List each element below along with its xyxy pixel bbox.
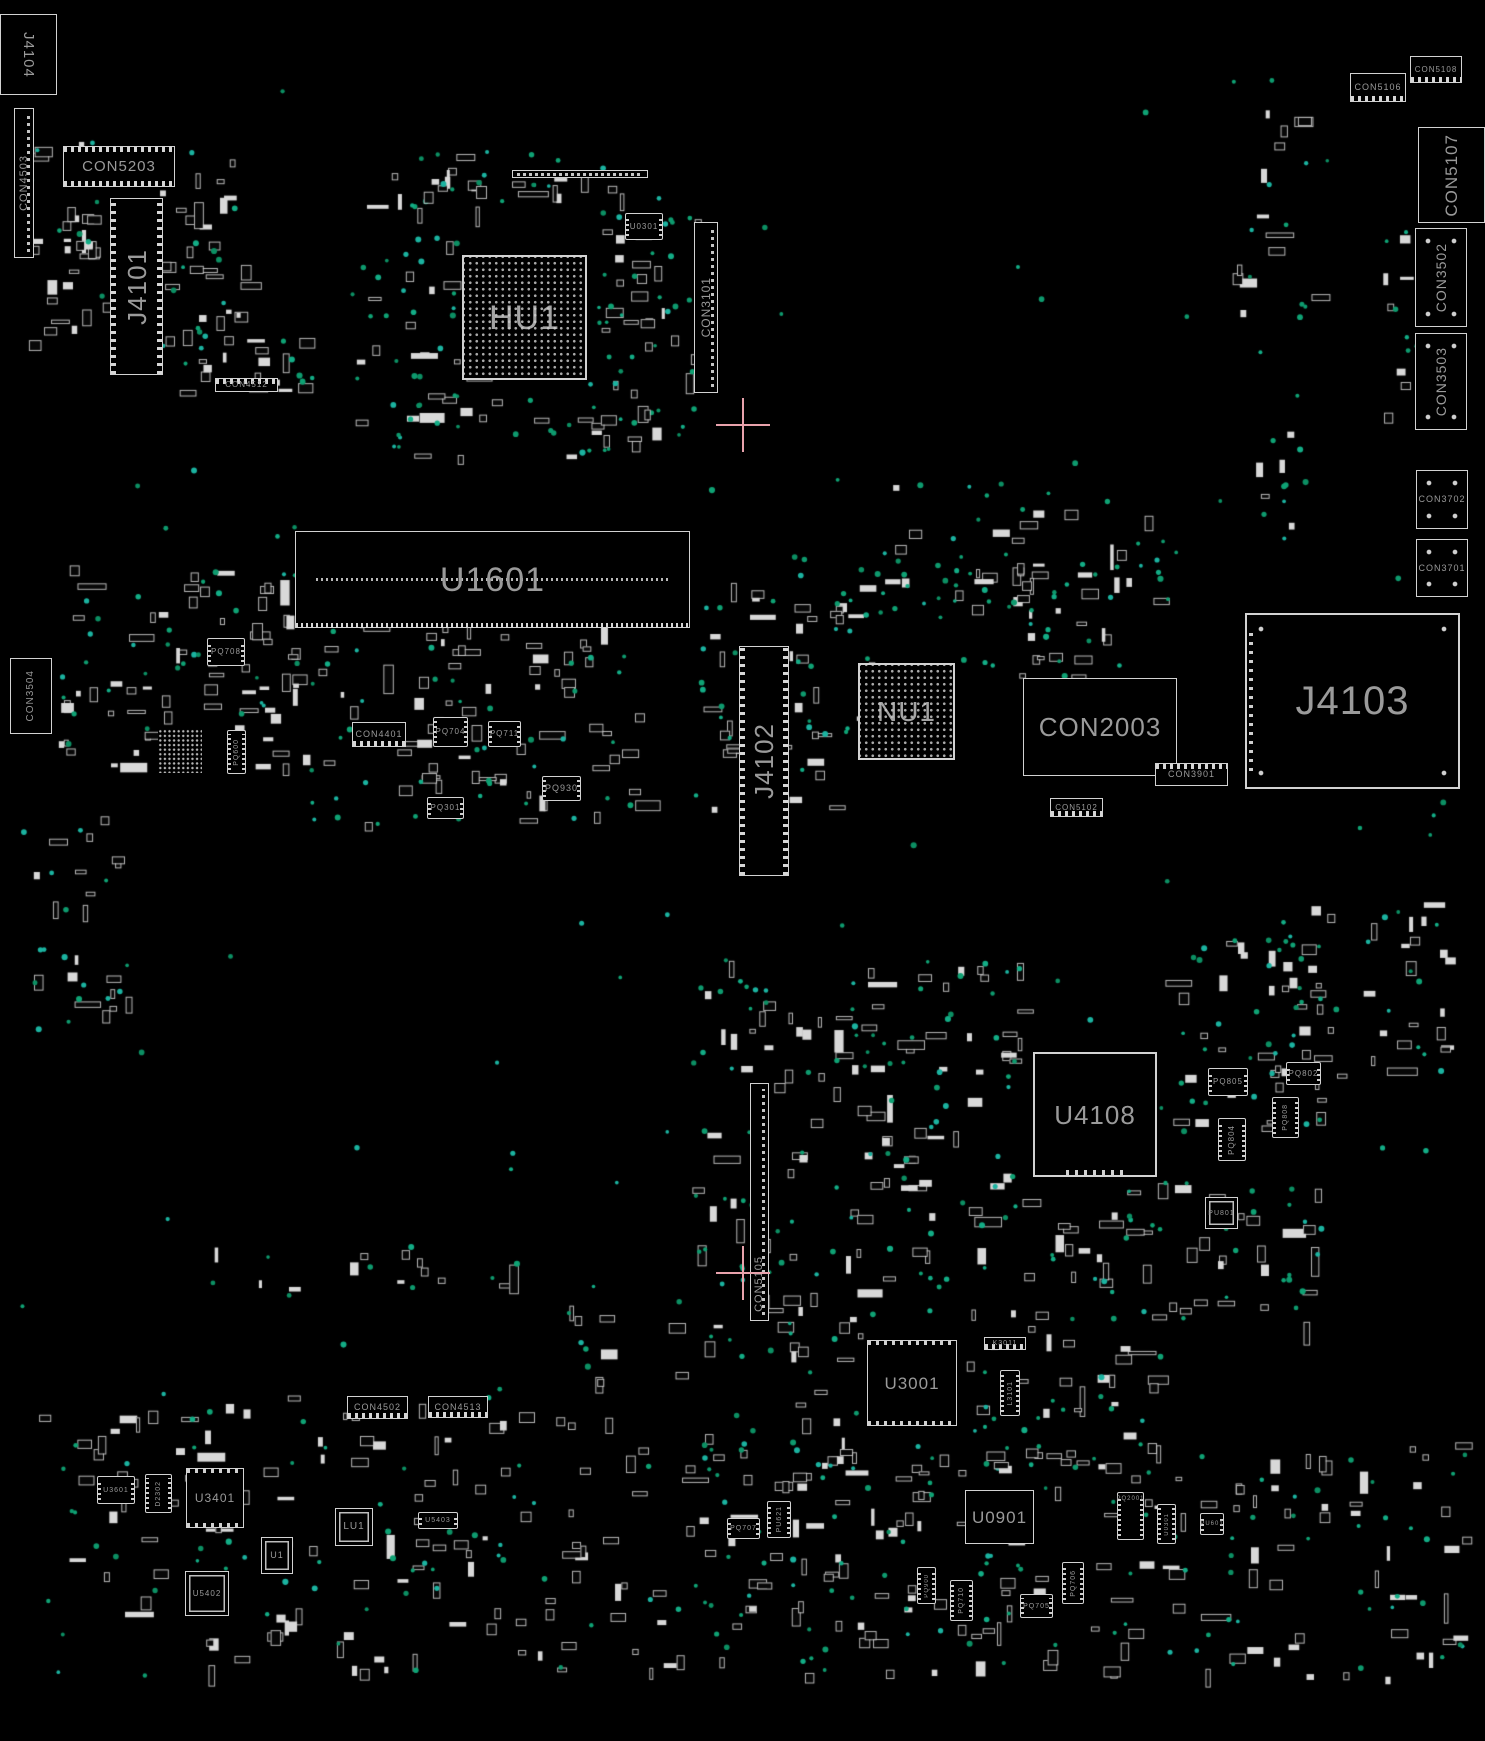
component-con4503[interactable]: CON4503 — [14, 108, 34, 258]
component-u3001[interactable]: U3001 — [867, 1340, 957, 1426]
component-label: CON4502 — [354, 1403, 401, 1412]
component-j4103[interactable]: J4103 — [1245, 613, 1460, 789]
component-label: J4101 — [124, 249, 150, 325]
component-con3502[interactable]: CON3502 — [1415, 228, 1467, 327]
component-label: CON3101 — [700, 277, 712, 337]
component-label: PU801 — [1208, 1210, 1234, 1217]
component-l3101[interactable]: L3101 — [1000, 1370, 1020, 1416]
component-con5203[interactable]: CON5203 — [63, 146, 175, 187]
component-pu621[interactable]: PU621 — [767, 1501, 791, 1538]
component-label: PQ301 — [431, 804, 461, 812]
component-label: PQ805 — [1213, 1078, 1243, 1086]
component-pq706[interactable]: PQ706 — [1062, 1562, 1084, 1604]
component-label: CON4401 — [355, 730, 402, 739]
component-u0301[interactable]: U0301 — [625, 213, 663, 240]
component-label: PU601 — [1200, 1521, 1223, 1527]
component-label: J4103 — [1296, 681, 1410, 721]
component-label: U5402 — [193, 1590, 222, 1598]
component-con3702[interactable]: CON3702 — [1416, 470, 1468, 529]
component-j4104[interactable]: J4104 — [0, 14, 57, 95]
component-label: PQ707 — [730, 1525, 757, 1532]
component-con3504[interactable]: CON3504 — [10, 658, 52, 734]
component-con5107[interactable]: CON5107 — [1418, 127, 1485, 223]
component-con3101[interactable]: CON3101 — [694, 222, 718, 393]
component-label: CON5106 — [1354, 83, 1401, 92]
component-con5102[interactable]: CON5102 — [1050, 798, 1103, 817]
component-label: CON2003 — [1039, 714, 1162, 740]
component-label: CON3901 — [1168, 770, 1215, 779]
component-pu801[interactable]: PU801 — [1205, 1197, 1238, 1229]
component-con5105[interactable]: CON5105 — [750, 1083, 769, 1321]
component-con5108[interactable]: CON5108 — [1410, 56, 1462, 83]
component-j4101[interactable]: J4101 — [110, 198, 163, 375]
component-label: PQ705 — [1023, 1603, 1050, 1610]
component-u4108[interactable]: U4108 — [1033, 1052, 1157, 1177]
component-label: U0301 — [1164, 1513, 1170, 1536]
component-pq707[interactable]: PQ707 — [727, 1518, 760, 1539]
component-pq708[interactable]: PQ708 — [207, 638, 245, 666]
component-label: U3001 — [884, 1375, 939, 1392]
component-label: HU1 — [489, 301, 560, 335]
component-label: CON5105 — [754, 1256, 765, 1312]
component-label: U1 — [270, 1551, 284, 1560]
component-label: PQ600 — [233, 739, 240, 766]
component-u0301b[interactable]: U0301 — [1157, 1504, 1176, 1544]
component-pq705[interactable]: PQ705 — [1020, 1594, 1053, 1618]
component-con5106[interactable]: CON5106 — [1350, 73, 1406, 102]
component-label: L3101 — [1007, 1381, 1014, 1405]
component-label: K3011 — [993, 1340, 1018, 1347]
component-d2302[interactable]: D2302 — [145, 1474, 172, 1513]
component-pq805[interactable]: PQ805 — [1208, 1068, 1248, 1096]
component-u3401[interactable]: U3401 — [186, 1468, 244, 1528]
component-label: J4104 — [21, 32, 36, 78]
component-pu601[interactable]: PU601 — [1200, 1513, 1224, 1535]
component-pq600[interactable]: PQ600 — [227, 730, 246, 774]
component-pq2001[interactable]: PQ2001 — [1117, 1492, 1144, 1540]
component-label: PQ704 — [436, 728, 466, 736]
component-label: CON5203 — [82, 159, 156, 174]
component-label: LU1 — [343, 1522, 364, 1532]
component-label: CON4503 — [19, 155, 30, 211]
component-label: CON5102 — [1055, 804, 1098, 812]
component-label: PQ2001 — [1116, 1496, 1144, 1502]
component-u3601[interactable]: U3601 — [97, 1476, 135, 1504]
component-label: NU1 — [877, 698, 936, 726]
component-pq704[interactable]: PQ704 — [433, 717, 468, 747]
component-pq711[interactable]: PQ711 — [488, 721, 521, 747]
component-pq301[interactable]: PQ301 — [427, 797, 464, 819]
component-k3011[interactable]: K3011 — [984, 1337, 1026, 1350]
component-label: D2302 — [155, 1481, 162, 1507]
component-nu1[interactable]: NU1 — [858, 663, 955, 760]
component-u5403[interactable]: U5403 — [418, 1512, 458, 1529]
component-pq808[interactable]: PQ808 — [1272, 1097, 1299, 1138]
component-pq900[interactable]: PQ900 — [917, 1567, 936, 1604]
component-con2003[interactable]: CON2003 — [1023, 678, 1177, 776]
component-con4512[interactable]: CON4512 — [215, 378, 278, 392]
component-label: CON3502 — [1434, 243, 1448, 312]
component-label: PQ710 — [958, 1587, 965, 1614]
component-label: U0901 — [972, 1509, 1027, 1526]
component-label: U5403 — [425, 1517, 451, 1524]
component-label: PU621 — [776, 1506, 783, 1532]
component-bga2[interactable] — [158, 729, 202, 773]
component-pq930[interactable]: PQ930 — [542, 776, 581, 801]
component-label: U0301 — [630, 223, 659, 231]
component-lu1[interactable]: LU1 — [335, 1508, 373, 1546]
component-u1601[interactable]: U1601 — [295, 531, 690, 628]
component-hu1[interactable]: HU1 — [462, 255, 587, 380]
component-label: U3401 — [195, 1492, 235, 1504]
component-label: PQ900 — [924, 1574, 930, 1598]
component-pq710[interactable]: PQ710 — [950, 1580, 973, 1621]
component-label: PQ930 — [545, 784, 578, 793]
component-con3901[interactable]: CON3901 — [1155, 763, 1228, 786]
component-label: CON3503 — [1434, 347, 1448, 416]
component-label: CON4512 — [225, 381, 268, 389]
component-label: U3601 — [103, 1487, 129, 1494]
component-pq802[interactable]: PQ802 — [1286, 1062, 1321, 1085]
component-j4102[interactable]: J4102 — [739, 646, 789, 876]
component-pq804[interactable]: PQ804 — [1218, 1118, 1246, 1161]
component-label: PQ808 — [1282, 1104, 1289, 1131]
component-label: J4102 — [751, 723, 777, 799]
component-label: CON5108 — [1415, 66, 1458, 74]
component-con3503[interactable]: CON3503 — [1415, 333, 1467, 430]
component-label: CON4513 — [434, 1403, 481, 1412]
component-label: PQ804 — [1228, 1125, 1236, 1155]
component-label: PQ711 — [490, 730, 519, 738]
component-label: PQ706 — [1070, 1570, 1077, 1597]
component-u5402[interactable]: U5402 — [185, 1571, 229, 1616]
component-con4513[interactable]: CON4513 — [428, 1396, 488, 1418]
component-con4401[interactable]: CON4401 — [352, 722, 406, 747]
component-u0901[interactable]: U0901 — [965, 1490, 1034, 1544]
component-label: PQ802 — [1289, 1070, 1319, 1078]
component-con4502[interactable]: CON4502 — [347, 1396, 408, 1419]
component-label: CON3701 — [1418, 564, 1465, 573]
pcb-board[interactable]: J4104CON4503CON5203J4101CON4512HU1U0301C… — [0, 0, 1485, 1741]
component-label: CON3504 — [26, 670, 36, 721]
component-label: CON3702 — [1418, 495, 1465, 504]
component-label: PQ708 — [211, 648, 241, 656]
component-label: CON5107 — [1443, 134, 1460, 217]
component-strip1[interactable] — [512, 170, 648, 178]
component-u1[interactable]: U1 — [261, 1537, 293, 1574]
component-con3701[interactable]: CON3701 — [1416, 539, 1468, 597]
component-label: U1601 — [440, 563, 545, 597]
component-label: U4108 — [1054, 1102, 1136, 1128]
